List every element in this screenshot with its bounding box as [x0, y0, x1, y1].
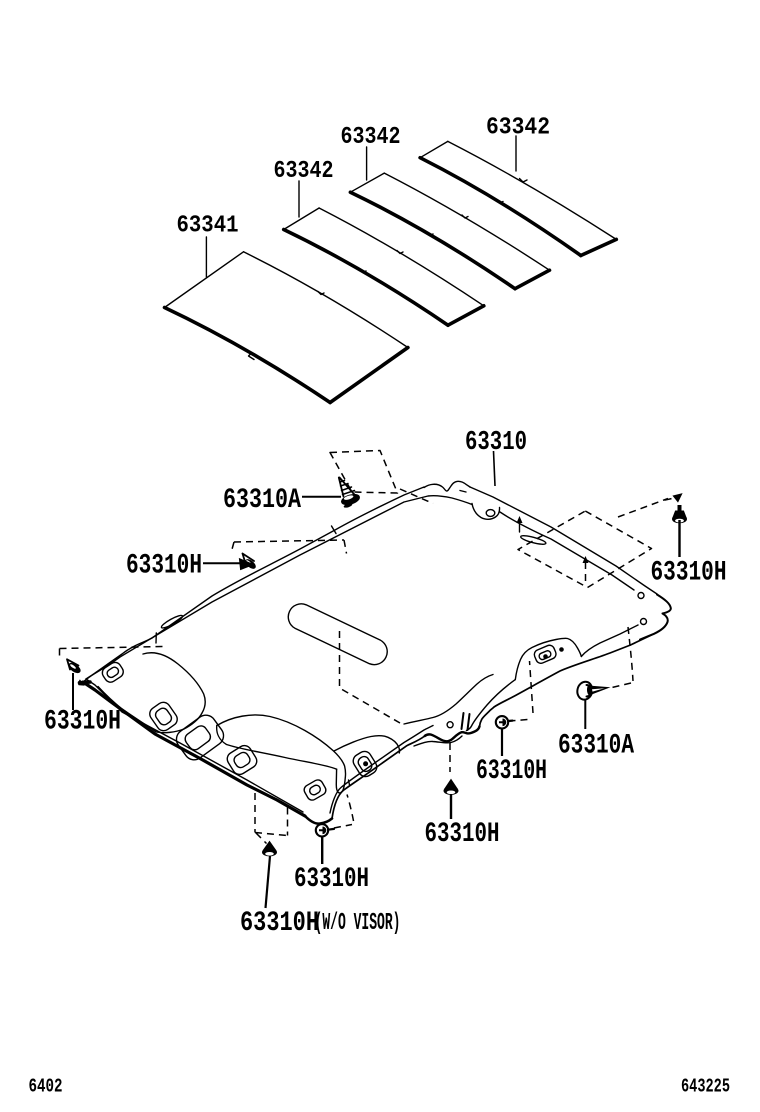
svg-text:(W/O VISOR): (W/O VISOR): [315, 910, 401, 937]
svg-text:6402: 6402: [29, 1076, 63, 1098]
svg-text:63342: 63342: [486, 115, 550, 142]
svg-text:63310H: 63310H: [425, 819, 500, 850]
svg-text:63310H: 63310H: [651, 558, 727, 589]
svg-text:63341: 63341: [177, 213, 239, 240]
svg-text:63310H: 63310H: [126, 551, 202, 582]
svg-text:63310H: 63310H: [240, 908, 319, 939]
svg-text:63310H: 63310H: [476, 756, 547, 787]
svg-text:63310H: 63310H: [44, 707, 121, 738]
svg-text:643225: 643225: [681, 1076, 730, 1098]
svg-text:63310A: 63310A: [558, 731, 634, 762]
svg-text:63342: 63342: [274, 158, 334, 185]
svg-text:63342: 63342: [341, 124, 401, 151]
svg-text:63310A: 63310A: [223, 485, 301, 516]
svg-text:63310: 63310: [465, 428, 527, 458]
svg-text:63310H: 63310H: [294, 864, 369, 895]
